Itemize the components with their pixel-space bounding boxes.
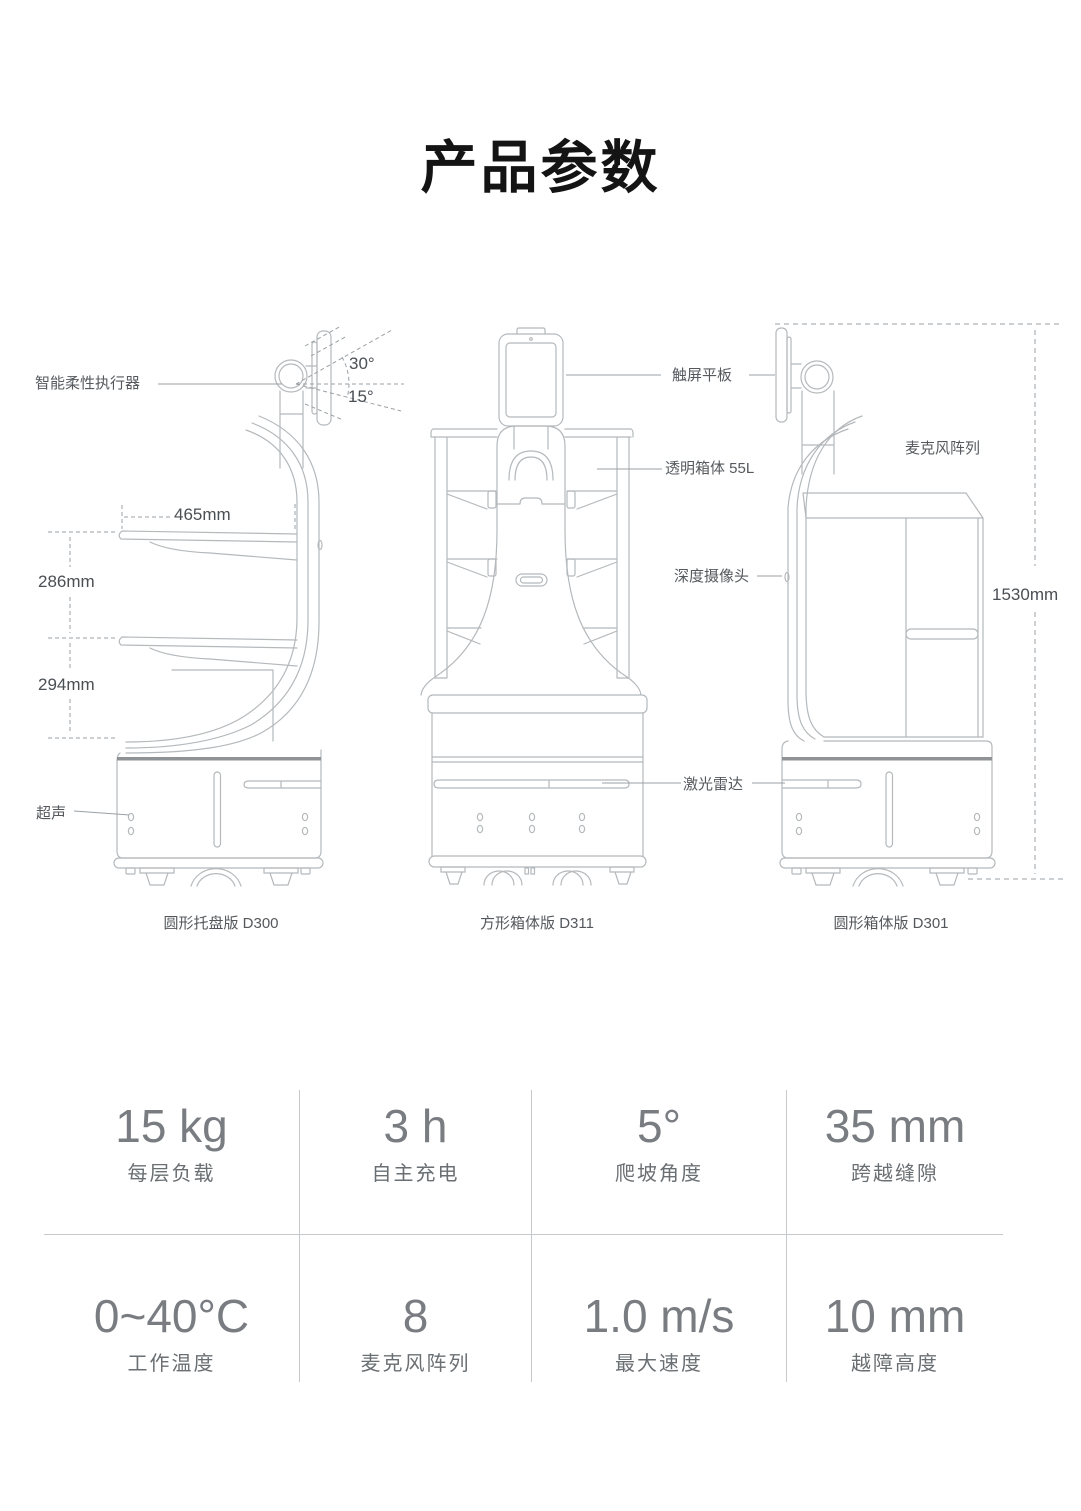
spec-charge: 3 h 自主充电 [300, 1090, 532, 1235]
spec-climb-angle-value: 5° [637, 1101, 681, 1151]
spec-grid: 15 kg 每层负载 3 h 自主充电 5° 爬坡角度 35 mm 跨越缝隙 0… [44, 1090, 1003, 1382]
d300-leader-lines [74, 384, 282, 815]
caption-d301: 圆形箱体版 D301 [833, 915, 948, 933]
spec-gap-crossing-label: 跨越缝隙 [851, 1163, 939, 1185]
dim-gap-lower: 294mm [38, 676, 95, 693]
robot-d300-drawing [114, 331, 331, 886]
dim-total-height: 1530mm [992, 586, 1058, 603]
spec-max-speed-value: 1.0 m/s [584, 1291, 735, 1341]
label-touchscreen-tablet: 触屏平板 [672, 368, 732, 383]
robot-d311-drawing [421, 328, 647, 885]
label-flexible-actuator: 智能柔性执行器 [35, 376, 140, 391]
robot-d301-drawing [776, 328, 995, 886]
dim-tray-width: 465mm [174, 506, 231, 523]
label-depth-camera: 深度摄像头 [674, 569, 749, 584]
spec-max-speed-label: 最大速度 [615, 1353, 703, 1375]
spec-climb-angle-label: 爬坡角度 [615, 1163, 703, 1185]
product-spec-page: 产品参数 [0, 0, 1081, 1511]
label-ultrasonic: 超声 [36, 806, 66, 821]
spec-temperature-label: 工作温度 [128, 1353, 216, 1375]
spec-obstacle-height-value: 10 mm [825, 1291, 966, 1341]
spec-gap-crossing: 35 mm 跨越缝隙 [787, 1090, 1003, 1235]
caption-d300: 圆形托盘版 D300 [163, 915, 278, 933]
caption-d311: 方形箱体版 D311 [480, 915, 594, 933]
spec-charge-label: 自主充电 [372, 1163, 460, 1185]
label-mic-array: 麦克风阵列 [905, 441, 980, 456]
spec-mic-array-label: 麦克风阵列 [361, 1353, 471, 1375]
label-angle-30: 30° [349, 355, 375, 372]
dim-gap-upper: 286mm [38, 573, 95, 590]
spec-obstacle-height-label: 越障高度 [851, 1353, 939, 1375]
label-angle-15: 15° [348, 388, 374, 405]
spec-max-speed: 1.0 m/s 最大速度 [532, 1235, 787, 1382]
spec-climb-angle: 5° 爬坡角度 [532, 1090, 787, 1235]
spec-mic-array: 8 麦克风阵列 [300, 1235, 532, 1382]
spec-load: 15 kg 每层负载 [44, 1090, 300, 1235]
spec-mic-array-value: 8 [403, 1291, 429, 1341]
spec-temperature-value: 0~40°C [94, 1291, 249, 1341]
label-lidar: 激光雷达 [683, 777, 743, 792]
label-transparent-cabinet: 透明箱体 55L [665, 461, 754, 476]
spec-obstacle-height: 10 mm 越障高度 [787, 1235, 1003, 1382]
spec-load-value: 15 kg [115, 1101, 228, 1151]
robot-diagram-section: 智能柔性执行器 30° 15° 465mm 286mm 294mm 超声 触屏平… [0, 0, 1081, 960]
spec-temperature: 0~40°C 工作温度 [44, 1235, 300, 1382]
spec-gap-crossing-value: 35 mm [825, 1101, 966, 1151]
robot-line-drawings [0, 300, 1081, 900]
spec-charge-value: 3 h [384, 1101, 448, 1151]
spec-load-label: 每层负载 [128, 1163, 216, 1185]
